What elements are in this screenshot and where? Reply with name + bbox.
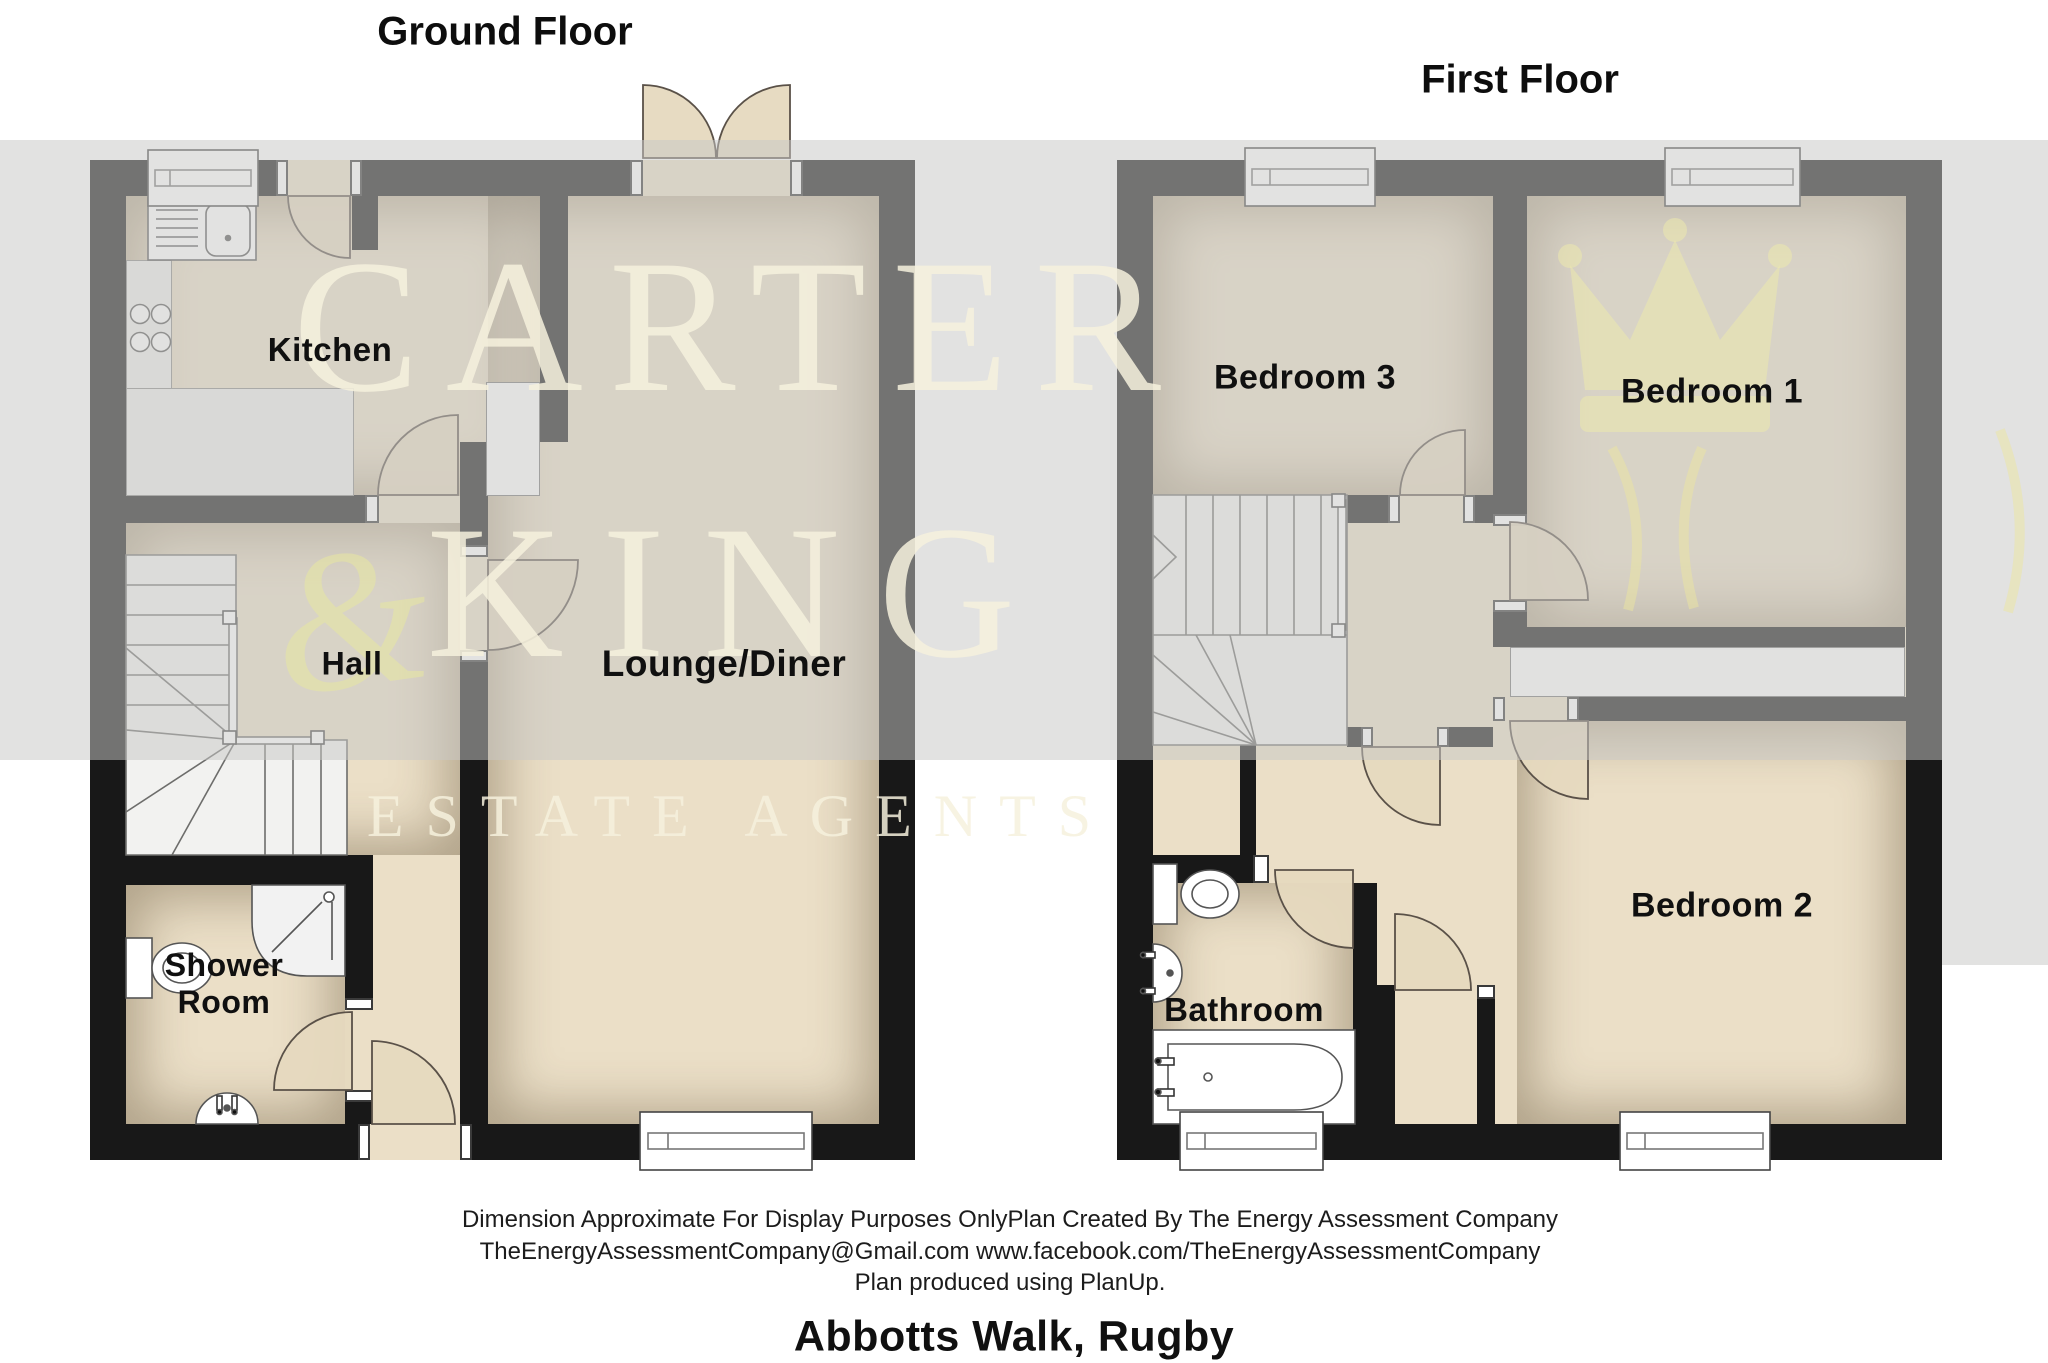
- label-bedroom2: Bedroom 2: [1631, 887, 1813, 926]
- ff-bathroom-door: [1275, 870, 1353, 948]
- label-shower-room-line2: Room: [178, 984, 271, 1020]
- plan-graphics: [0, 0, 2048, 1363]
- gf-basin: [196, 1093, 258, 1124]
- gf-front-door: [372, 1041, 455, 1124]
- label-shower-room: Shower Room: [165, 947, 284, 1021]
- gf-lounge-door: [488, 560, 578, 650]
- ff-landing-door: [1362, 747, 1440, 825]
- ff-bedroom1-door: [1510, 522, 1588, 600]
- label-shower-room-line1: Shower: [165, 947, 284, 983]
- label-bathroom: Bathroom: [1164, 991, 1324, 1029]
- label-bedroom1: Bedroom 1: [1621, 373, 1803, 412]
- gf-french-door-left: [643, 85, 716, 158]
- gf-kitchen-window: [148, 150, 258, 206]
- ff-bedroom2-door: [1510, 721, 1588, 799]
- footer-line1: Dimension Approximate For Display Purpos…: [0, 1206, 2020, 1234]
- footer-line3: Plan produced using PlanUp.: [0, 1269, 2020, 1297]
- ff-bedroom3-window: [1245, 148, 1375, 206]
- label-kitchen: Kitchen: [268, 331, 393, 369]
- ff-bedroom2-window: [1620, 1112, 1770, 1170]
- floor-plan-page: CARTER & KING ESTATE AGENTS Ground Floor…: [0, 0, 2048, 1363]
- label-hall: Hall: [322, 646, 383, 683]
- label-bedroom3: Bedroom 3: [1214, 359, 1396, 398]
- ground-floor-title: Ground Floor: [377, 10, 633, 55]
- footer-line2: TheEnergyAssessmentCompany@Gmail.com www…: [0, 1238, 2020, 1266]
- first-floor-title: First Floor: [1421, 58, 1619, 103]
- address-title: Abbotts Walk, Rugby: [794, 1313, 1234, 1362]
- gf-hob: [131, 305, 171, 352]
- gf-kitchen-hall-door: [378, 415, 458, 495]
- ff-staircase: [1153, 494, 1347, 745]
- ff-bath-tub: [1153, 1030, 1355, 1124]
- gf-staircase: [126, 555, 347, 855]
- gf-kitchen-door: [288, 196, 350, 258]
- gf-lounge-window: [640, 1112, 812, 1170]
- ff-bathroom-window: [1180, 1112, 1323, 1170]
- windows: [148, 148, 1800, 1170]
- ff-toilet: [1153, 864, 1239, 924]
- ff-bedroom1-window: [1665, 148, 1800, 206]
- label-lounge-diner: Lounge/Diner: [602, 643, 846, 685]
- ff-cupboard-door: [1395, 914, 1471, 990]
- gf-french-door-right: [717, 85, 790, 158]
- gf-shower-door: [274, 1012, 352, 1090]
- door-swings: [274, 85, 1588, 1124]
- ff-bedroom3-door: [1400, 430, 1465, 495]
